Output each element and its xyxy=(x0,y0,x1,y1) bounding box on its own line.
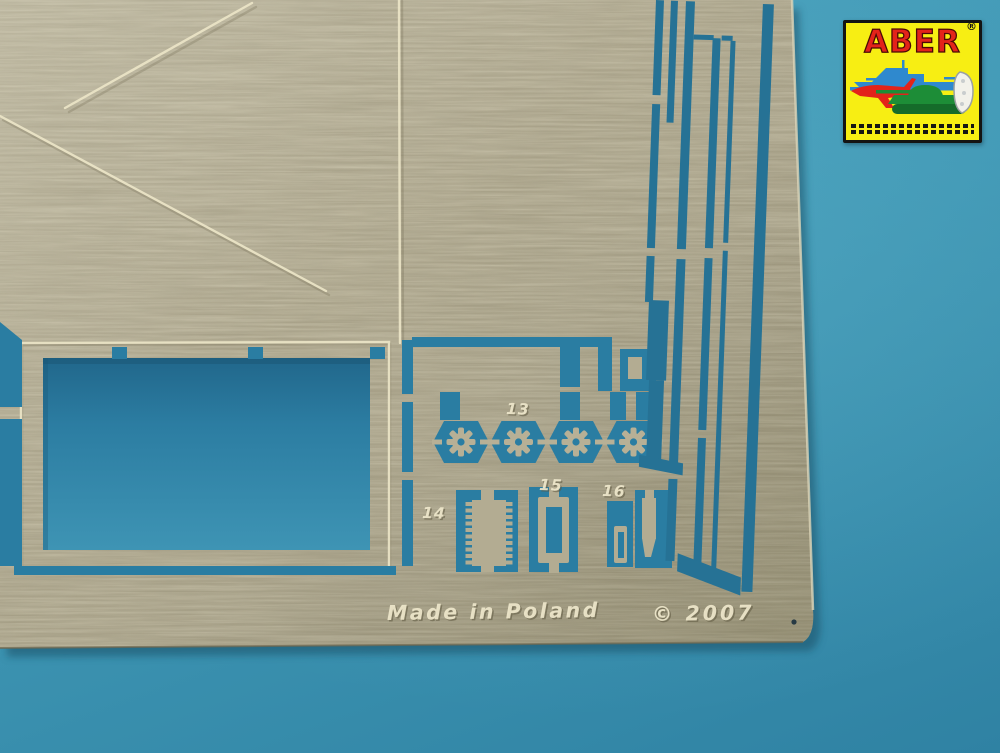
boat-icon xyxy=(954,72,973,113)
gear-hex-cutout xyxy=(547,421,605,463)
aber-logo: ABER ® xyxy=(843,20,982,143)
copyright-text: © 2007 xyxy=(652,601,755,626)
logo-vehicle-scene xyxy=(848,58,977,120)
left-edge-slit xyxy=(0,419,22,566)
part-15-cutout xyxy=(529,487,578,573)
frame-side-channel xyxy=(402,340,413,566)
part-label-16: 16 xyxy=(602,482,626,501)
brand-name: ABER xyxy=(846,24,979,60)
photo-background: 13 13 14 14 15 15 16 16 Made in Poland M… xyxy=(0,0,1000,753)
part-label-14: 14 xyxy=(422,504,446,523)
maker-text: Made in Poland Made in Poland © 2007 © 2… xyxy=(387,598,757,627)
frame-bottom-slit xyxy=(14,566,396,575)
part-label-15: 15 xyxy=(539,476,563,495)
part-label-13: 13 xyxy=(506,400,530,419)
frame-window-cutout xyxy=(43,358,370,550)
barcode-row xyxy=(851,124,974,128)
barcode-row xyxy=(851,130,974,134)
part-14-cutout xyxy=(456,490,518,572)
gear-hex-cutout xyxy=(490,421,548,463)
registered-trademark-icon: ® xyxy=(966,20,977,33)
made-in-text: Made in Poland xyxy=(387,598,600,625)
gear-hex-cutout xyxy=(432,421,490,463)
corner-hole xyxy=(791,619,796,624)
